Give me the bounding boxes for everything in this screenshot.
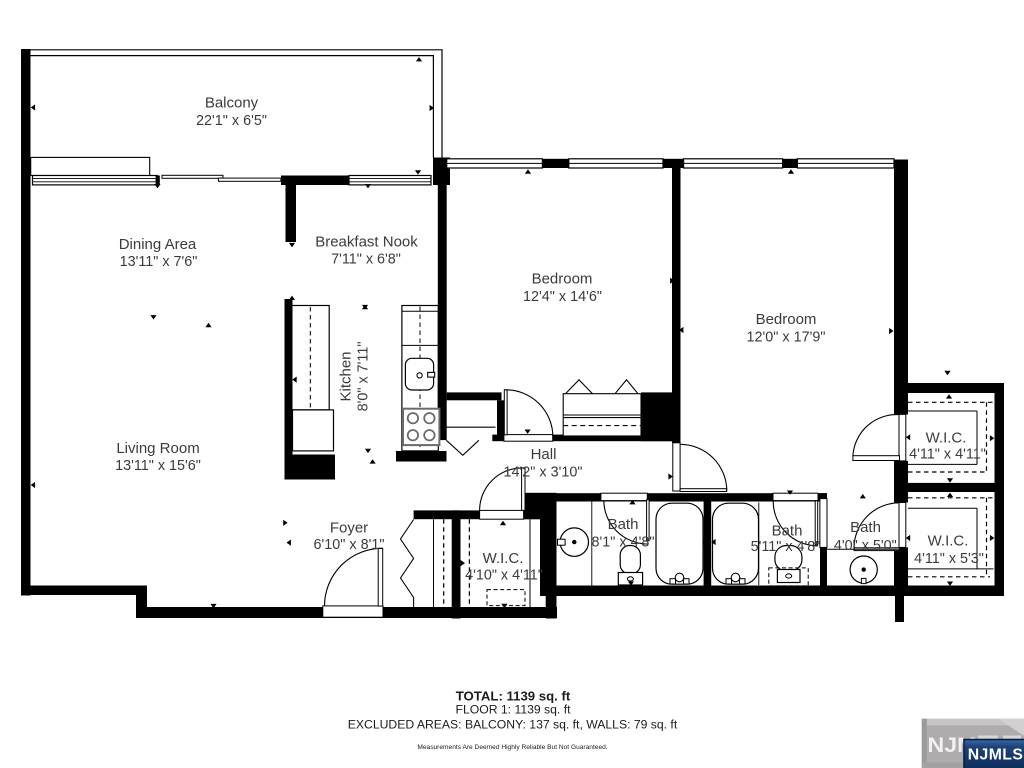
svg-text:4'0" x 5'0": 4'0" x 5'0" bbox=[834, 538, 897, 554]
svg-text:Bath: Bath bbox=[608, 516, 639, 533]
svg-text:14'2" x 3'10": 14'2" x 3'10" bbox=[504, 465, 583, 481]
svg-text:Living Room: Living Room bbox=[116, 440, 199, 457]
svg-text:Bath: Bath bbox=[850, 519, 881, 536]
svg-text:W.I.C.: W.I.C. bbox=[926, 430, 967, 447]
svg-text:Dining Area: Dining Area bbox=[119, 236, 197, 253]
svg-text:12'4" x 14'6": 12'4" x 14'6" bbox=[523, 289, 602, 305]
svg-text:Kitchen: Kitchen bbox=[338, 351, 355, 401]
svg-text:EXCLUDED AREAS: BALCONY: 137 s: EXCLUDED AREAS: BALCONY: 137 sq. ft, WAL… bbox=[348, 718, 678, 732]
svg-text:Foyer: Foyer bbox=[330, 520, 368, 537]
svg-text:Bath: Bath bbox=[772, 523, 803, 540]
svg-text:W.I.C.: W.I.C. bbox=[483, 550, 524, 567]
svg-text:TOTAL: 1139 sq. ft: TOTAL: 1139 sq. ft bbox=[456, 689, 571, 704]
svg-text:NJMLS: NJMLS bbox=[968, 747, 1024, 764]
svg-text:Bedroom: Bedroom bbox=[532, 271, 593, 288]
svg-text:13'11" x 7'6": 13'11" x 7'6" bbox=[120, 254, 198, 270]
svg-text:4'11" x 5'3": 4'11" x 5'3" bbox=[914, 551, 984, 567]
svg-text:12'0" x 17'9": 12'0" x 17'9" bbox=[747, 330, 826, 346]
svg-text:7'11" x 6'8": 7'11" x 6'8" bbox=[331, 252, 401, 268]
svg-text:4'11" x 4'11": 4'11" x 4'11" bbox=[909, 447, 986, 463]
svg-text:Balcony: Balcony bbox=[205, 95, 259, 112]
svg-text:4'10" x 4'11": 4'10" x 4'11" bbox=[465, 568, 543, 584]
svg-text:Measurements Are Deemed Highly: Measurements Are Deemed Highly Reliable … bbox=[417, 744, 607, 751]
svg-text:8'1" x 4'8": 8'1" x 4'8" bbox=[592, 535, 655, 551]
svg-text:FLOOR 1: 1139 sq. ft: FLOOR 1: 1139 sq. ft bbox=[456, 703, 572, 717]
svg-text:13'11" x 15'6": 13'11" x 15'6" bbox=[115, 458, 201, 474]
svg-text:5'11" x 4'8": 5'11" x 4'8" bbox=[751, 539, 821, 555]
svg-text:8'0" x 7'11": 8'0" x 7'11" bbox=[356, 342, 372, 412]
svg-text:Bedroom: Bedroom bbox=[756, 311, 817, 328]
svg-text:Hall: Hall bbox=[531, 446, 557, 463]
svg-text:Breakfast Nook: Breakfast Nook bbox=[315, 234, 418, 251]
svg-text:W.I.C.: W.I.C. bbox=[928, 533, 969, 550]
svg-text:22'1" x 6'5": 22'1" x 6'5" bbox=[196, 113, 267, 129]
svg-text:6'10" x 8'1": 6'10" x 8'1" bbox=[314, 537, 385, 553]
